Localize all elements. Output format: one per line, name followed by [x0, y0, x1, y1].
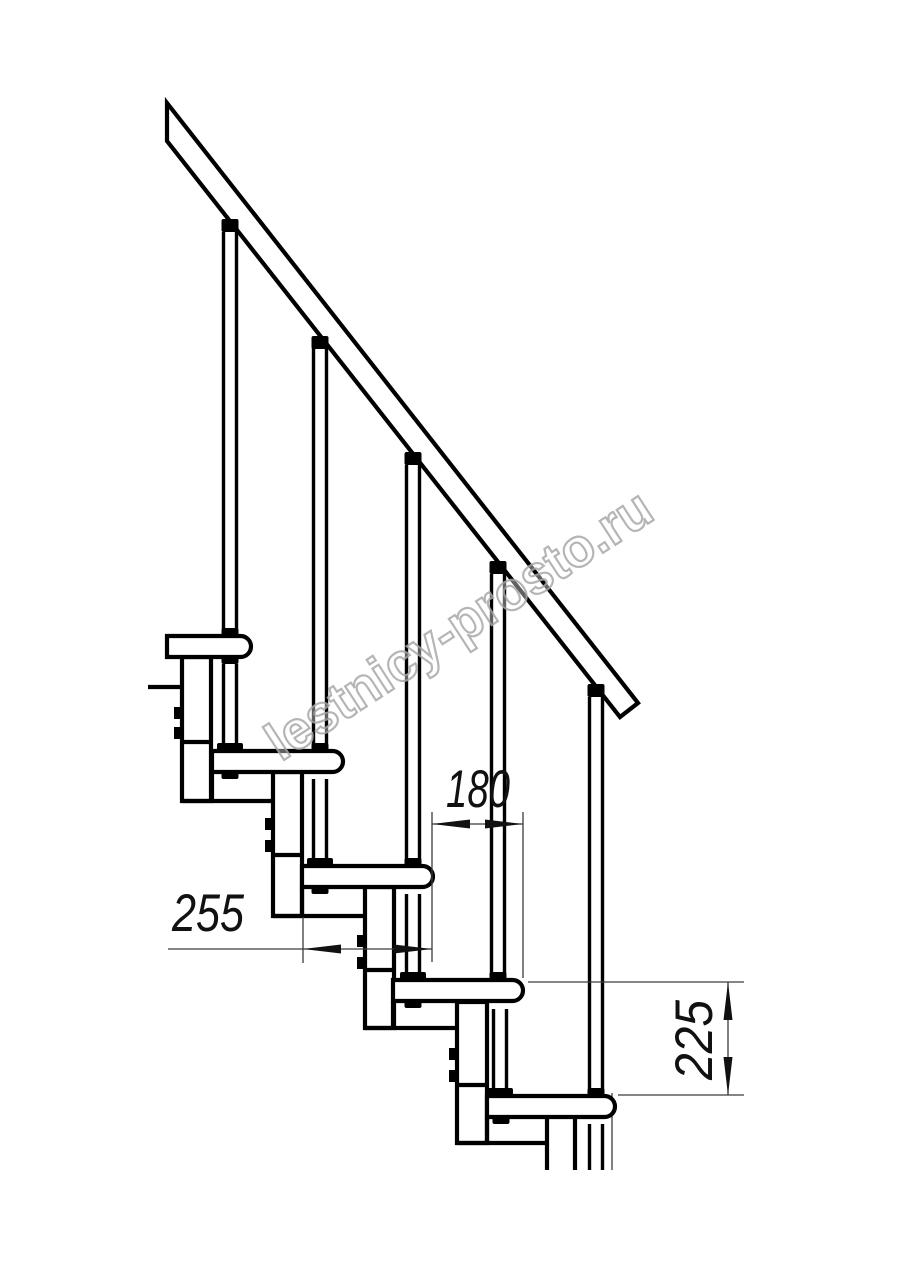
bolt-icon — [174, 727, 183, 739]
tread-cap-icon — [222, 628, 239, 637]
rail-connector-icon — [405, 452, 422, 465]
tread-1 — [167, 636, 251, 657]
bolt-icon — [357, 935, 366, 947]
bolt-icon — [265, 840, 274, 852]
landing-cap-icon — [487, 1088, 513, 1097]
bolt-icon — [174, 707, 183, 719]
tread-cap-icon — [405, 858, 422, 867]
nut-icon — [405, 1001, 422, 1008]
rail-connector-icon — [312, 336, 329, 349]
nut-icon — [312, 887, 329, 894]
nut-icon — [493, 1117, 510, 1124]
landing-cap-icon — [400, 972, 426, 981]
dimension-spacing-180: 180 — [432, 760, 523, 978]
dimension-label-225: 225 — [665, 1000, 724, 1081]
rail-connector-icon — [588, 684, 605, 697]
dimension-rise-225: 225 — [528, 982, 744, 1095]
tread-4 — [393, 980, 523, 1001]
treads — [167, 636, 615, 1117]
dimension-label-255: 255 — [171, 884, 244, 943]
baluster-4 — [492, 574, 507, 1089]
bolt-icon — [265, 818, 274, 830]
bolt-icon — [357, 957, 366, 969]
baluster-1 — [224, 232, 237, 744]
tread-3 — [302, 866, 433, 887]
staircase-elevation-drawing: 180 255 225 lestnicy-prosto.ru — [0, 0, 914, 1280]
tread-cap-icon — [490, 972, 507, 981]
bolt-icon — [449, 1048, 458, 1060]
rail-connector-icon — [222, 219, 239, 232]
dimension-label-180: 180 — [446, 760, 510, 819]
nut-icon — [222, 772, 239, 779]
support-column-2 — [265, 772, 366, 916]
tread-5 — [487, 1096, 615, 1117]
tread-cap-icon — [588, 1088, 605, 1097]
support-column-5 — [547, 1117, 575, 1170]
baluster-3 — [407, 465, 420, 974]
baluster-2 — [314, 348, 327, 859]
nut-icon — [222, 657, 239, 664]
bolt-icon — [449, 1070, 458, 1082]
landing-cap-icon — [307, 858, 333, 867]
landing-cap-icon — [217, 743, 243, 752]
technical-drawing-page: 180 255 225 lestnicy-prosto.ru — [0, 0, 914, 1280]
